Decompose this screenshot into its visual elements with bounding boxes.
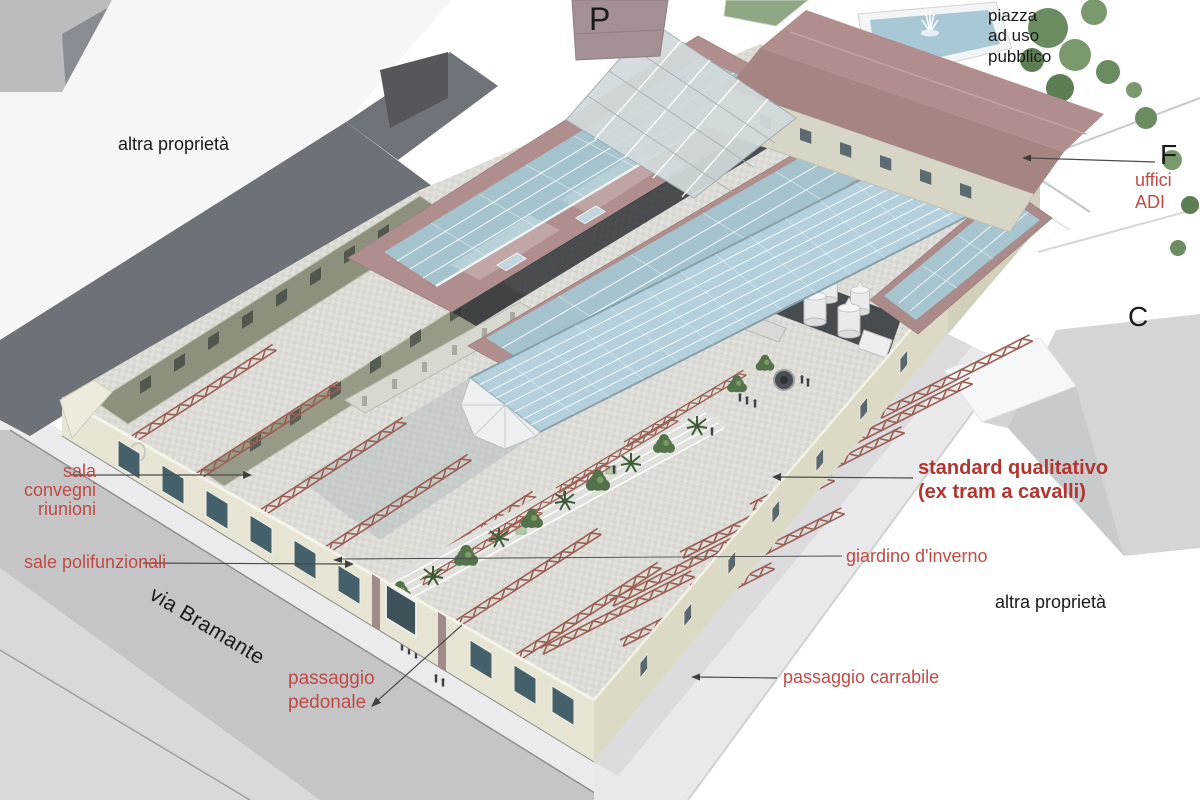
neighbour-building-right xyxy=(944,314,1200,556)
altra-proprieta-right-label: altra proprietà xyxy=(995,592,1106,614)
parking-block xyxy=(572,0,668,60)
f-marker-label: F xyxy=(1160,138,1177,172)
c-marker-label: C xyxy=(1128,300,1148,334)
uffici-adi-label: uffici ADI xyxy=(1135,170,1200,213)
giardino-inverno-label: giardino d'inverno xyxy=(846,546,988,568)
standard-qualitativo-label: standard qualitativo (ex tram a cavalli) xyxy=(918,456,1108,505)
sale-polifunzionali-label: sale polifunzionali xyxy=(24,552,166,574)
passaggio-carrabile-label: passaggio carrabile xyxy=(783,667,939,689)
parking-label: P xyxy=(589,0,610,38)
piazza-label: piazza ad uso pubblico xyxy=(988,6,1051,67)
passaggio-pedonale-label: passaggio pedonale xyxy=(288,667,375,715)
sala-convegni-label: sala convegni riunioni xyxy=(4,462,96,519)
altra-proprieta-left-label: altra proprietà xyxy=(118,134,229,156)
axonometric-scene xyxy=(0,0,1200,800)
rendering-canvas: P piazza ad uso pubblico altra proprietà… xyxy=(0,0,1200,800)
